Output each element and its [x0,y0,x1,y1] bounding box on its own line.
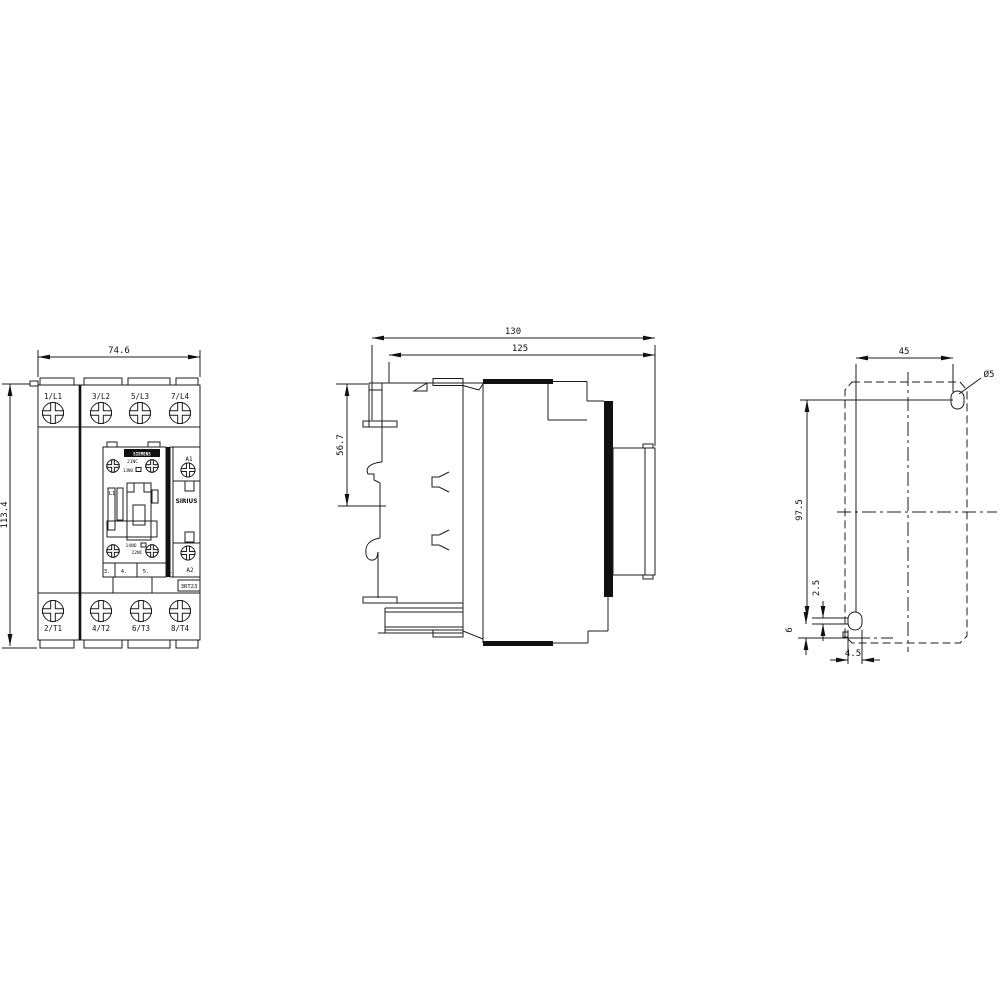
terminal-label: 2/T1 [44,624,62,633]
coil-terminal-label: A1 [185,456,193,463]
front-bottom-terminals: 2/T1 4/T2 6/T3 8/T4 [43,601,191,634]
front-center-module: SIEMENS 21NC 13NO L1 14NO 22NC 3. 4. [103,442,173,593]
screw-icon [170,403,191,424]
screw-icon [43,601,64,622]
screw-icon [170,601,191,622]
mounting-slot-bottom [848,612,862,630]
aux-contact-label: 14NO [125,543,136,549]
contactor-dimension-drawing: 74.6 113.4 1/L1 3/L2 5/L3 [0,0,1000,1000]
front-view: 74.6 113.4 1/L1 3/L2 5/L3 [0,346,200,648]
screw-icon [181,546,195,560]
hole-diameter-label: Ø5 [984,369,995,380]
coil-terminal-label: A2 [186,567,194,574]
position-label: 4. [121,569,128,575]
terminal-label: 3/L2 [92,392,110,401]
front-top-terminals: 1/L1 3/L2 5/L3 7/L4 [43,392,191,424]
hole-diameter-callout: Ø5 [959,369,994,394]
screw-icon [107,460,119,472]
screw-icon [131,601,152,622]
position-label: 5. [143,569,150,575]
side-view: 130 125 56.7 [336,327,655,646]
front-height-dimension: 113.4 [0,384,37,648]
dimension-drawing-canvas: 74.6 113.4 1/L1 3/L2 5/L3 [0,0,1000,1000]
terminal-label: 4/T2 [92,624,110,633]
terminal-label: 6/T3 [132,624,150,633]
front-height-label: 113.4 [0,501,10,528]
terminal-label: 8/T4 [171,624,190,633]
pole-label: L1 [109,491,116,497]
slot-width-label: 4.5 [845,649,861,659]
hole-pitch-x-label: 45 [899,347,910,357]
front-coil-column: A1 SIRIUS A2 3RT23 [170,447,200,591]
screw-icon [107,545,119,557]
side-rail-offset-dimension: 56.7 [336,384,386,506]
screw-icon [91,403,112,424]
edge-offset-label: 6 [785,627,795,632]
front-width-label: 74.6 [108,346,130,356]
screw-icon [43,403,64,424]
screw-icon [146,460,158,472]
side-depth-body-label: 125 [512,344,528,354]
drill-pattern-view: 45 Ø5 97.5 2.5 6 [785,347,997,664]
edge-offset-dimension: 6 [785,607,893,655]
snap-clip [432,472,449,492]
terminal-label: 1/L1 [44,392,62,401]
hole-pitch-y-label: 97.5 [795,499,805,521]
terminal-label: 7/L4 [171,392,190,401]
terminal-label: 5/L3 [131,392,149,401]
slot-width-dimension: 4.5 [830,630,880,664]
front-cover-profile [613,448,655,575]
brand-label: SIEMENS [133,452,151,457]
aux-contact-label: 21NC [127,459,138,465]
snap-clip [432,530,449,550]
slot-play-label: 2.5 [812,580,822,596]
side-rail-offset-label: 56.7 [336,434,346,456]
screw-icon [181,463,195,477]
screw-icon [91,601,112,622]
side-depth-body-dimension: 125 [389,344,655,383]
screw-icon [146,545,158,557]
position-label: 3. [104,569,111,575]
side-outline [363,379,655,647]
screw-icon [130,403,151,424]
aux-contact-label: 13NO [123,468,134,473]
type-code-label: 3RT23 [181,584,198,590]
hole-pitch-x-dimension: 45 [856,347,953,612]
front-width-dimension: 74.6 [38,346,200,377]
side-depth-total-label: 130 [505,327,521,337]
aux-contact-label: 22NC [131,550,142,556]
series-label: SIRIUS [176,499,198,505]
